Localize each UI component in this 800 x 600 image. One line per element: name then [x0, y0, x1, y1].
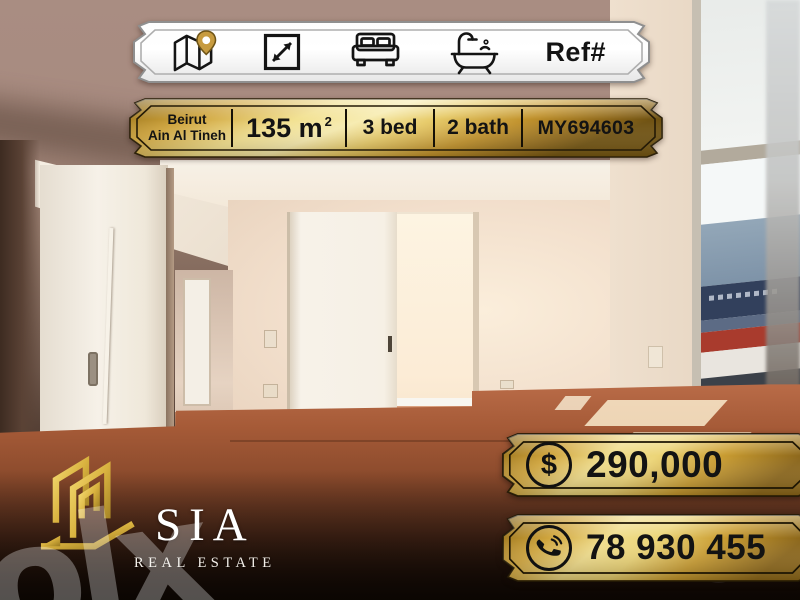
wall-outlet-right [500, 380, 514, 389]
sia-building-logo-icon [28, 452, 146, 572]
location-section: Beirut Ain Al Tineh [143, 112, 231, 144]
sliding-door-panel [287, 212, 397, 442]
wall-outlet [263, 384, 278, 398]
area-section: 135 m 2 [233, 113, 345, 144]
agency-logo: SIA REAL ESTATE [28, 452, 276, 572]
door-handle [88, 352, 98, 386]
bedrooms-section: 3 bed [347, 116, 433, 140]
hallway-inner-door [183, 278, 211, 406]
price-amount: 290,000 [586, 444, 723, 486]
area-superscript: 2 [325, 114, 332, 129]
bathtub-icon [448, 30, 501, 75]
property-listing-image: SIA REAL ESTATE olx olx [0, 0, 800, 600]
dollar-icon: $ [526, 442, 572, 488]
reference-code: MY694603 [538, 117, 635, 140]
area-value: 135 m [246, 113, 323, 144]
agency-name: SIA [155, 502, 255, 549]
window-wall-switch [648, 346, 663, 368]
currency-symbol: $ [541, 451, 557, 480]
location-district: Ain Al Tineh [148, 128, 226, 144]
agency-tagline: REAL ESTATE [134, 555, 276, 572]
reference-section: MY694603 [523, 117, 649, 140]
phone-icon [526, 525, 572, 571]
phone-number: 78 930 455 [586, 528, 766, 568]
sliding-door-handle [388, 336, 392, 352]
light-switch [264, 330, 277, 348]
phone-badge: 78 930 455 [502, 514, 800, 582]
sunlight-patch [584, 400, 727, 426]
location-city: Beirut [167, 112, 206, 128]
property-info-badge: Beirut Ain Al Tineh 135 m 2 3 bed 2 bath… [129, 98, 663, 158]
ref-label: Ref# [545, 37, 606, 68]
price-badge: $ 290,000 [502, 433, 800, 497]
inner-room-baseboard [397, 398, 475, 406]
bedrooms-value: 3 bed [363, 116, 418, 140]
bed-icon [347, 32, 404, 72]
map-location-icon [171, 30, 218, 74]
bathrooms-section: 2 bath [435, 116, 521, 140]
property-features-badge: Ref# [133, 21, 650, 83]
area-dimensions-icon [262, 32, 302, 72]
bathrooms-value: 2 bath [447, 116, 509, 140]
